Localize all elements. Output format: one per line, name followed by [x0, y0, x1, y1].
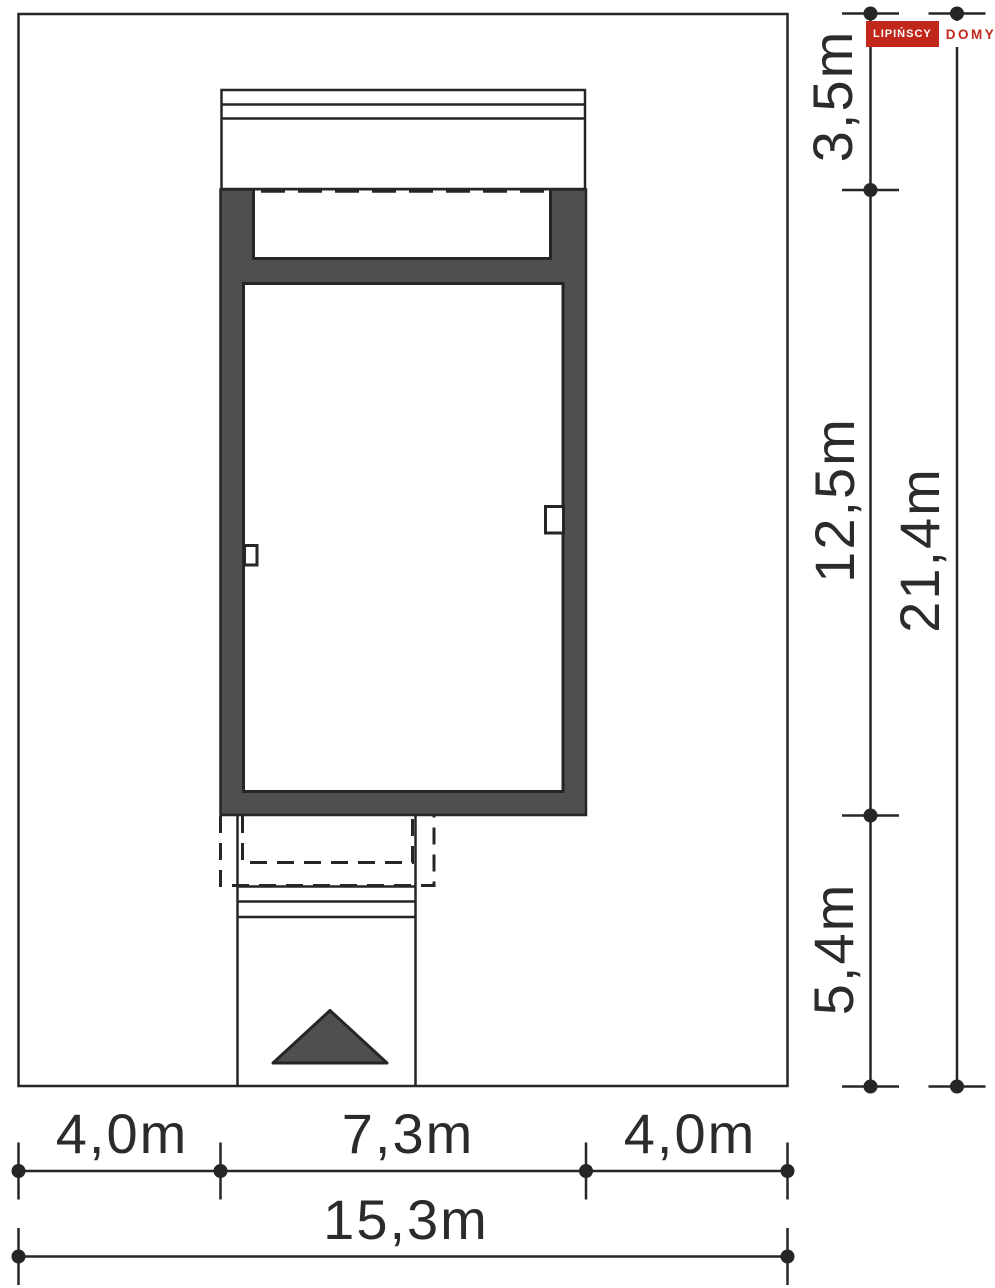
brand-logo: LIPIŃSCY DOMY [866, 21, 995, 47]
dim-label-plot-depth: 21,4m [892, 467, 948, 633]
dim-label-house-depth: 12,5m [807, 417, 863, 583]
brand-logo-primary: LIPIŃSCY [866, 21, 939, 47]
dim-label-setback-top: 3,5m [805, 30, 861, 163]
dim-label-setback-bottom: 5,4m [806, 883, 862, 1016]
terrace-recess [253, 191, 551, 259]
site-plan: 3,5m 12,5m 5,4m 21,4m 4,0m 7,3m 4,0m 15,… [0, 0, 995, 1288]
dim-label-house-width: 7,3m [342, 1106, 475, 1162]
dim-label-setback-right: 4,0m [624, 1106, 757, 1162]
brand-logo-suffix: DOMY [939, 21, 995, 47]
dim-label-plot-width: 15,3m [323, 1192, 489, 1248]
dim-label-setback-left: 4,0m [56, 1106, 189, 1162]
site-plan-drawing [0, 0, 995, 1288]
chimney-left [245, 546, 258, 566]
house-interior [244, 284, 564, 792]
chimney-right [546, 507, 564, 534]
